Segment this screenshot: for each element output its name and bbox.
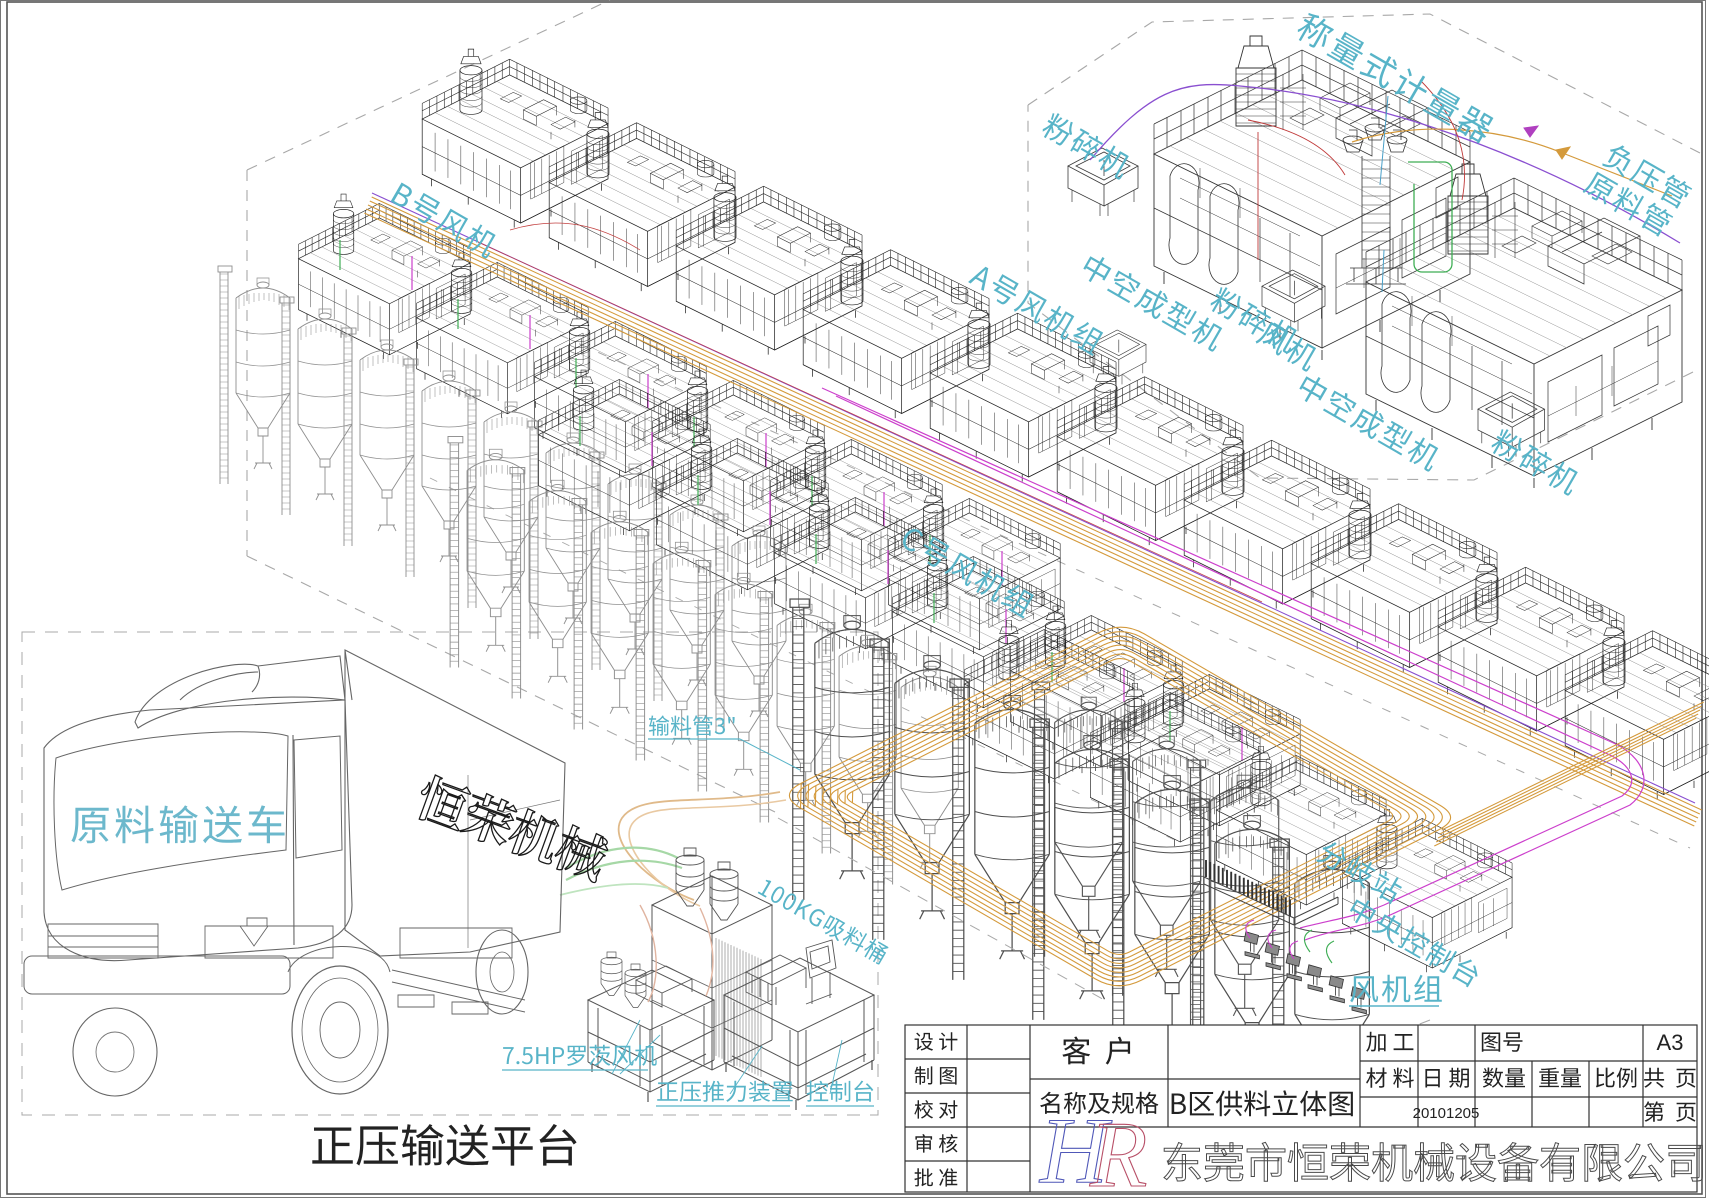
svg-text:A3: A3	[1657, 1030, 1684, 1055]
svg-text:20101205: 20101205	[1413, 1105, 1480, 1122]
svg-text:R: R	[1089, 1103, 1147, 1200]
